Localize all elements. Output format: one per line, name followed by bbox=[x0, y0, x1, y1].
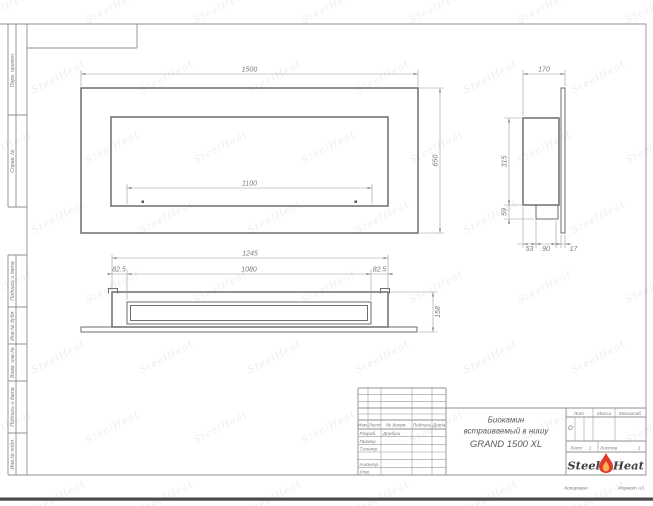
left-stamp-column: Перв. примен. Справ. № Подпись и дата Ин… bbox=[8, 24, 27, 475]
below-frame-labels: Копировал Формат А3 bbox=[564, 486, 644, 491]
side-front-flange bbox=[561, 88, 565, 233]
dim-bottom-inner: 1080 bbox=[241, 266, 257, 273]
row-developed-label: Разраб. bbox=[360, 431, 377, 436]
dim-side-90: 90 bbox=[542, 246, 550, 253]
stamp-podpis-data-1: Подпись и дата bbox=[10, 261, 16, 300]
bottom-slot-inner bbox=[131, 306, 368, 321]
dim-bottom-offset-right: 82.5 bbox=[373, 266, 387, 273]
stamp-inv-podl: Инв.№ подл. bbox=[10, 439, 16, 470]
sheet-frame bbox=[0, 24, 653, 501]
th-list: Лист bbox=[367, 422, 380, 427]
lit-value: О bbox=[568, 426, 573, 432]
front-view: 1500 650 1100 bbox=[81, 66, 444, 233]
stamp-perv-primen: Перв. примен. bbox=[10, 53, 16, 87]
row-approved-label: Утв. bbox=[360, 469, 371, 474]
engineering-drawing: Перв. примен. Справ. № Подпись и дата Ин… bbox=[0, 0, 653, 506]
sheet-label: Лист bbox=[569, 445, 582, 450]
row-checked-label: Провер. bbox=[360, 439, 377, 444]
side-view: 170 315 59 53 90 17 bbox=[502, 66, 579, 253]
dim-side-burner-height: 59 bbox=[502, 208, 509, 216]
row-tcontrol-label: Т.контр. bbox=[360, 446, 379, 451]
dim-side-17: 17 bbox=[570, 246, 579, 253]
th-izm: Изм. bbox=[358, 422, 368, 427]
front-opening bbox=[111, 117, 388, 206]
doc-title-line3: GRAND 1500 XL bbox=[470, 439, 542, 450]
stamp-podpis-data-2: Подпись и дата bbox=[10, 387, 16, 426]
bottom-tray-body bbox=[112, 292, 388, 327]
stamp-inv-dubl: Инв.№ дубл. bbox=[10, 310, 16, 340]
front-dim-lines bbox=[81, 70, 444, 233]
scale-label: Масштаб bbox=[619, 411, 641, 416]
lit-label: Лит. bbox=[573, 411, 585, 416]
copied-label: Копировал bbox=[564, 486, 588, 491]
sheets-label: Листов bbox=[599, 445, 618, 450]
brand-word-steel: Steel bbox=[567, 459, 600, 473]
brand-logo: Steel Heat bbox=[567, 453, 644, 473]
drawing-sheet: SteelHeatSteelHeatSteelHeatSteelHeatStee… bbox=[0, 0, 653, 506]
row-ncontrol-label: Н.контр. bbox=[360, 462, 380, 467]
dim-side-53: 53 bbox=[526, 246, 534, 253]
front-outer-body bbox=[81, 88, 418, 233]
dim-front-width: 1500 bbox=[242, 66, 258, 73]
row-developed-value: Дербуш bbox=[382, 431, 400, 436]
dim-front-opening: 1100 bbox=[242, 180, 257, 187]
sheets-value: 1 bbox=[638, 445, 641, 450]
sheet-value: 1 bbox=[589, 445, 592, 450]
dim-bottom-offset-left: 82.5 bbox=[112, 266, 126, 273]
title-block: Изм. Лист № докум. Подпись Дата Разраб. … bbox=[358, 388, 646, 475]
doc-title-line2: встраиваемый в нишу bbox=[464, 427, 550, 436]
stamp-vzam-inv: Взам. инв.№ bbox=[10, 347, 16, 378]
th-doc-no: № докум. bbox=[386, 422, 407, 427]
th-date: Дата bbox=[432, 422, 446, 427]
th-sign: Подпись bbox=[413, 422, 432, 427]
dim-bottom-outer: 1245 bbox=[242, 250, 258, 257]
side-body bbox=[523, 118, 559, 205]
dim-side-height: 315 bbox=[502, 156, 509, 168]
stamp-sprav-no: Справ. № bbox=[10, 149, 16, 173]
format-label: Формат А3 bbox=[618, 486, 644, 491]
mass-label: Масса bbox=[597, 411, 611, 416]
burner-slot-marks bbox=[142, 201, 358, 204]
side-burner-box bbox=[536, 205, 558, 219]
dim-side-depth: 170 bbox=[538, 66, 550, 73]
doc-title-line1: Биокамин bbox=[488, 416, 525, 425]
page-bottom-edge bbox=[0, 498, 653, 501]
dim-bottom-depth: 158 bbox=[435, 306, 442, 318]
brand-word-heat: Heat bbox=[612, 459, 645, 473]
dim-front-height: 650 bbox=[433, 155, 440, 167]
bottom-view: 1245 82.5 1080 82.5 158 bbox=[81, 250, 442, 332]
front-dim-arrows bbox=[81, 73, 441, 233]
